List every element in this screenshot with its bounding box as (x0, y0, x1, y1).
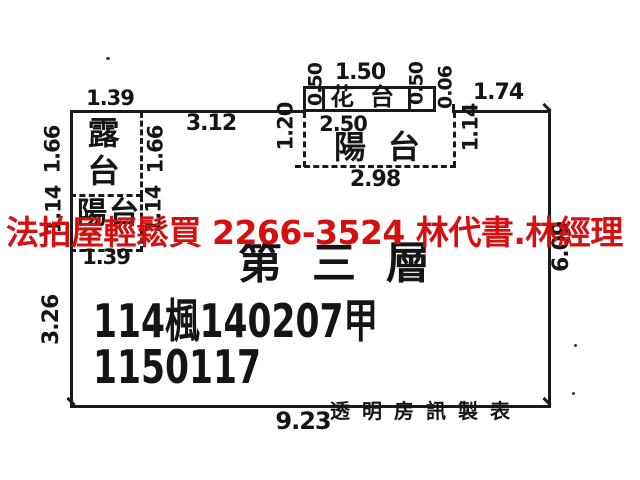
dim-terrace-width-top: 1.39 (78, 88, 142, 109)
case-number-line1: 114楓140207甲 (93, 298, 378, 344)
scan-speck (106, 57, 110, 60)
dim-balcony-top-outer-width: 2.98 (330, 169, 420, 191)
room-label-flower-bed: 花台 (330, 85, 410, 110)
dim-terrace-right-height: 1.66 (146, 128, 167, 174)
scan-speck (574, 344, 577, 347)
room-label-roof-terrace: 露台 (84, 116, 118, 192)
dim-balcony-top-inner-width: 2.50 (303, 114, 383, 135)
case-number-line2: 1150117 (93, 344, 261, 390)
balcony-top-right-dashed (453, 112, 456, 167)
dim-balcony-top-right-depth: 1.14 (461, 106, 482, 152)
dim-step-offset: 0.06 (437, 65, 456, 111)
dim-terrace-left-height: 1.66 (43, 128, 64, 174)
dim-top-edge-right: 1.74 (463, 82, 533, 104)
dim-flowerbed-top-width: 1.50 (325, 62, 395, 84)
dim-bottom-width: 9.23 (266, 409, 340, 433)
wall-left (70, 110, 73, 408)
dim-top-edge-mid: 3.12 (180, 113, 242, 135)
room-label-balcony-top: 陽台 (334, 131, 442, 165)
dim-left-side-lower-height: 3.26 (41, 299, 63, 345)
ad-overlay-text: 法拍屋輕鬆買 2266-3524 林代書.林經理 (6, 214, 640, 252)
dim-flowerbed-left-depth: 0.50 (307, 62, 326, 108)
maker-credit: 透明房訊製表 (330, 399, 522, 423)
scan-speck (572, 392, 575, 395)
floorplan-scan: 1.39 1.66 1.66 3.12 1.50 0.50 0.50 0.06 … (0, 0, 640, 480)
dim-balcony-top-left-depth: 1.20 (276, 105, 297, 151)
dim-flowerbed-right-depth: 0.50 (408, 61, 427, 107)
